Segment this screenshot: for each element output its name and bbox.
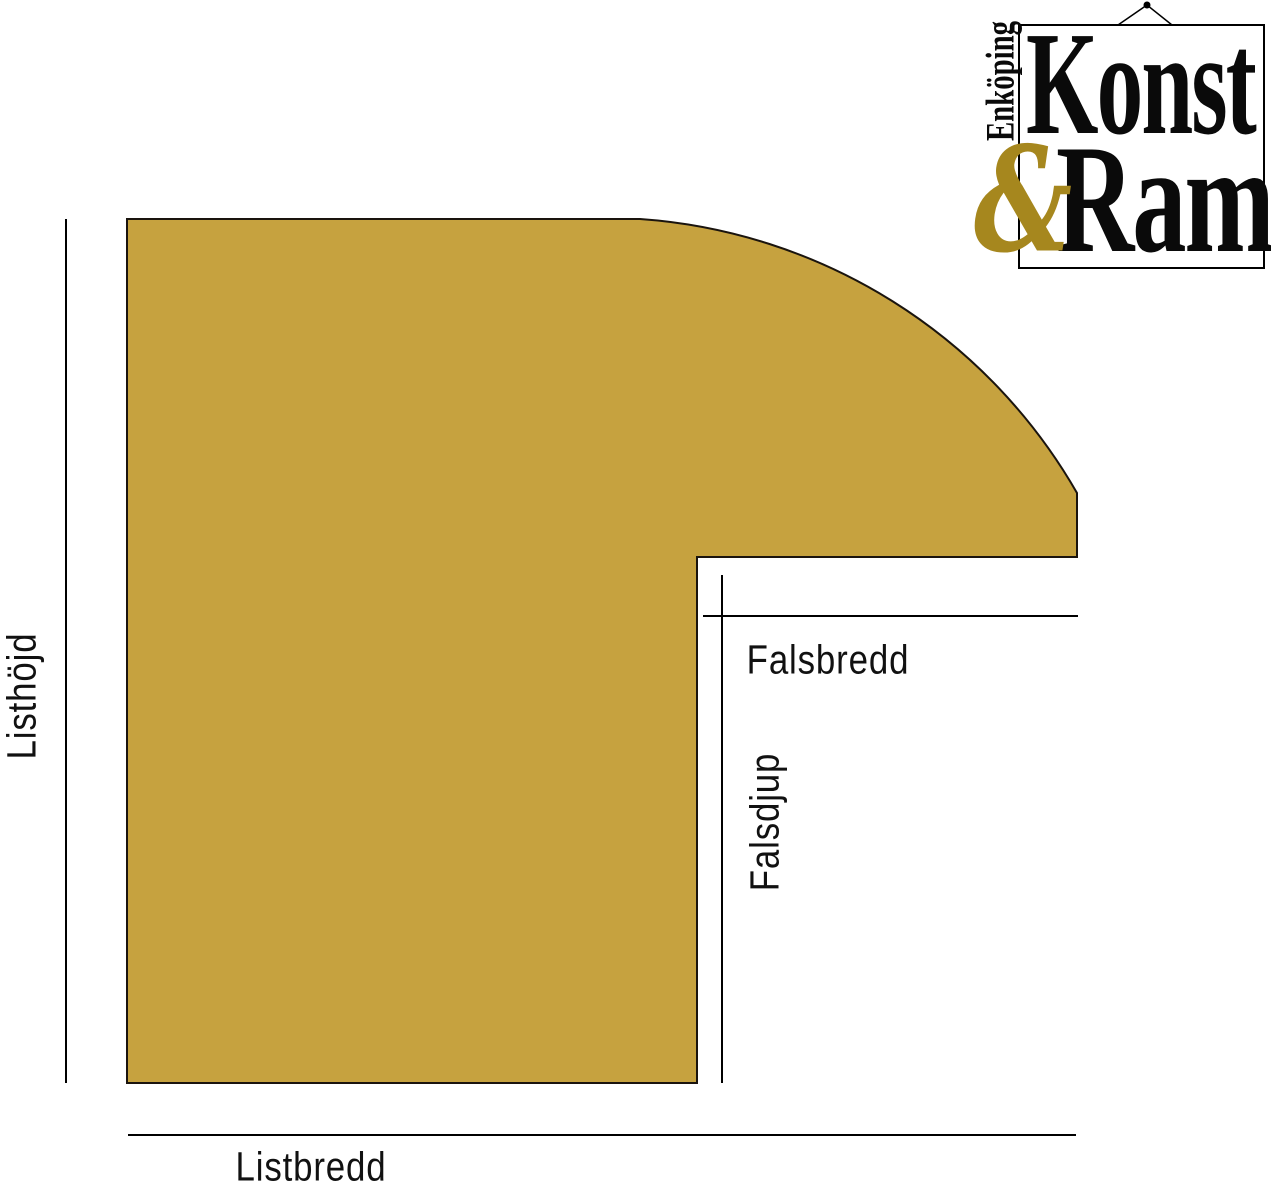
moulding-profile-shape	[127, 219, 1077, 1083]
falsbredd-label: Falsbredd	[747, 637, 910, 684]
listhojd-label: Listhöjd	[0, 633, 46, 760]
logo-ram-text: Ram	[1056, 122, 1271, 277]
logo-ampersand: &	[974, 129, 1072, 274]
listbredd-label: Listbredd	[235, 1144, 386, 1191]
falsdjup-label: Falsdjup	[742, 753, 789, 892]
